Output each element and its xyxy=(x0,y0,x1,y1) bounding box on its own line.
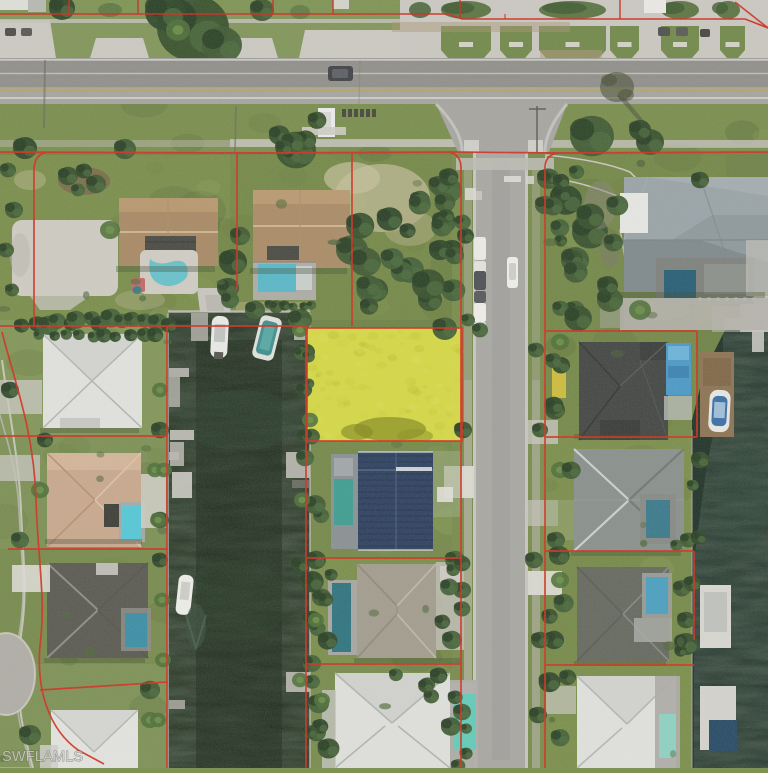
svg-text:SWFLAMLS: SWFLAMLS xyxy=(2,749,83,765)
